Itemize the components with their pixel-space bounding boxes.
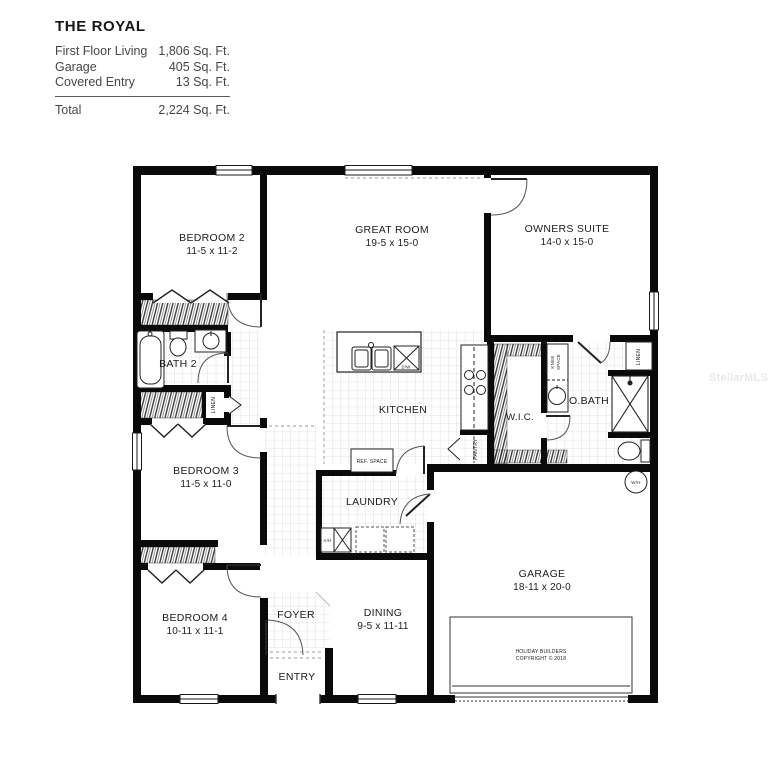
copyright-line2: COPYRIGHT © 2018: [516, 655, 566, 662]
garage-door-opening: [455, 694, 628, 704]
water-heater-label: W/H: [631, 480, 640, 485]
knee-space-label-1: KNEE: [550, 355, 555, 368]
dining-name: DINING: [364, 607, 403, 619]
garage-name: GARAGE: [519, 568, 566, 580]
bathroom-sink: [195, 330, 226, 352]
entry-name: ENTRY: [279, 671, 316, 683]
shower: [612, 376, 648, 432]
garage-dims: 18-11 x 20-0: [513, 582, 571, 593]
owners-suite-name: OWNERS SUITE: [525, 223, 610, 235]
owners-suite-dims: 14-0 x 15-0: [541, 237, 594, 248]
bedroom3-name: BEDROOM 3: [173, 465, 239, 477]
toilet: [170, 331, 187, 356]
bedroom4-name: BEDROOM 4: [162, 612, 228, 624]
mls-watermark: StellarMLS: [709, 372, 768, 384]
kitchen-name: KITCHEN: [379, 404, 427, 416]
floor-plan-page: THE ROYAL First Floor Living 1,806 Sq. F…: [0, 0, 768, 768]
foyer-name: FOYER: [277, 609, 315, 621]
range: [461, 345, 488, 430]
builder-copyright: HOLIDAY BUILDERS COPYRIGHT © 2018: [515, 649, 567, 662]
bedroom4-dims: 10-11 x 11-1: [166, 626, 223, 637]
laundry-name: LAUNDRY: [346, 496, 398, 508]
great-room-dims: 19-5 x 15-0: [366, 238, 419, 249]
pantry-label: PANTRY: [473, 438, 479, 460]
kitchen-sink: [352, 343, 391, 371]
dishwasher-label: D/W: [401, 365, 410, 370]
linen-hall-label: LINEN: [211, 397, 217, 413]
copyright-line1: HOLIDAY BUILDERS: [515, 649, 567, 655]
knee-space-label-2: SPACE: [556, 354, 561, 370]
bedroom2-name: BEDROOM 2: [179, 232, 245, 244]
garage-door-bay: [450, 617, 632, 693]
bedroom3-dims: 11-5 x 11-0: [180, 479, 232, 490]
linen-obath-label: LINEN: [636, 349, 642, 365]
dining-dims: 9-5 x 11-11: [357, 621, 409, 632]
bedroom2-dims: 11-5 x 11-2: [186, 246, 238, 257]
great-room-name: GREAT ROOM: [355, 224, 429, 236]
owners-toilet: [618, 440, 650, 462]
ref-space-label: REF. SPACE: [357, 459, 388, 465]
wic-name: W.I.C.: [506, 412, 534, 423]
floor-plan: D/W PANTRY REF. SPACE A/H: [0, 0, 768, 768]
air-handler-label: A/H: [323, 538, 331, 543]
bath2-name: BATH 2: [159, 358, 197, 370]
obath-name: O.BATH: [569, 395, 609, 407]
entry-opening: [276, 694, 320, 704]
